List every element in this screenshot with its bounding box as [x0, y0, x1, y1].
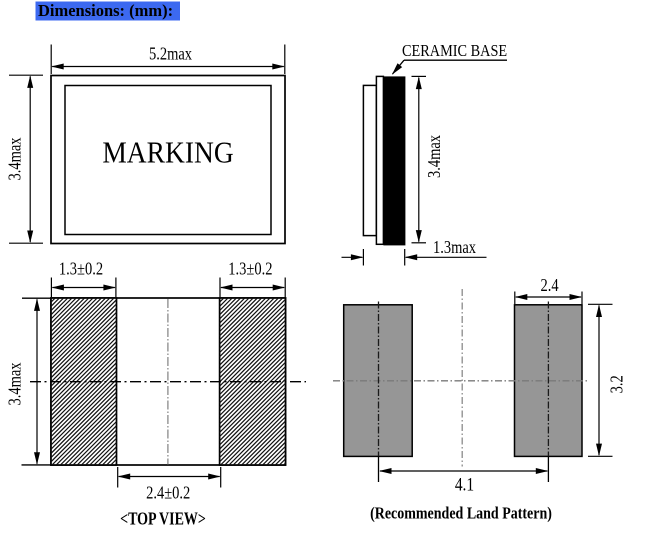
svg-text:<TOP VIEW>: <TOP VIEW> — [120, 510, 206, 529]
svg-text:2.4: 2.4 — [540, 277, 558, 296]
svg-text:1.3±0.2: 1.3±0.2 — [228, 258, 272, 279]
svg-text:CERAMIC BASE: CERAMIC BASE — [402, 42, 507, 60]
svg-text:(Recommended Land Pattern): (Recommended Land Pattern) — [370, 504, 552, 522]
svg-text:2.4±0.2: 2.4±0.2 — [146, 482, 190, 503]
svg-text:1.3±0.2: 1.3±0.2 — [59, 258, 103, 279]
svg-text:3.4max: 3.4max — [6, 362, 25, 405]
svg-text:3.4max: 3.4max — [426, 135, 445, 178]
svg-text:1.3max: 1.3max — [433, 239, 476, 258]
svg-text:3.4max: 3.4max — [6, 137, 25, 180]
svg-text:5.2max: 5.2max — [149, 45, 192, 64]
svg-text:3.2: 3.2 — [608, 375, 627, 393]
svg-text:4.1: 4.1 — [455, 474, 474, 495]
svg-text:Dimensions: (mm):: Dimensions: (mm): — [38, 1, 173, 20]
svg-text:MARKING: MARKING — [102, 136, 233, 170]
